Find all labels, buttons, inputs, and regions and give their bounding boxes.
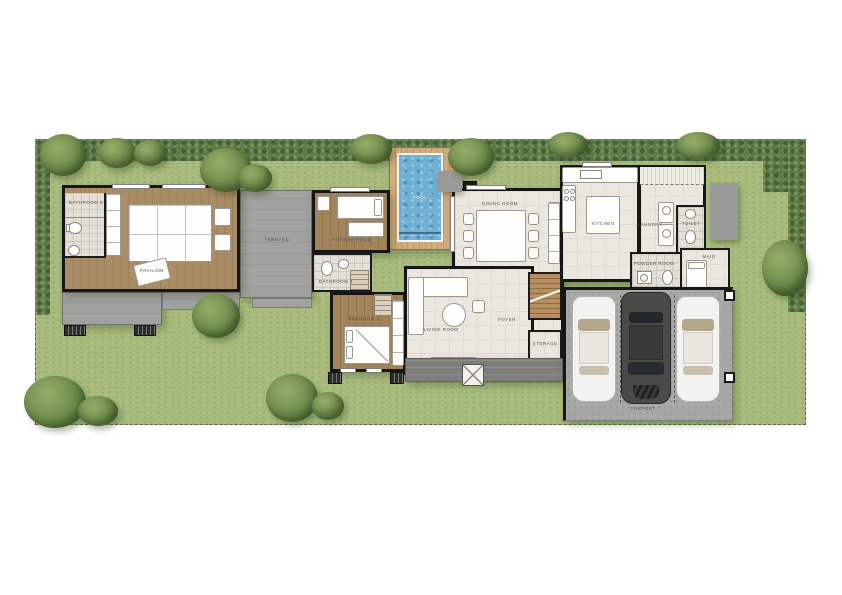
dining-window-west bbox=[450, 196, 455, 252]
car-white-left-rear-window bbox=[579, 366, 608, 375]
fitness-pillow bbox=[374, 199, 382, 216]
stove-burner-3 bbox=[564, 196, 569, 201]
fitness-side-table bbox=[317, 196, 330, 211]
bedroom4-window-2 bbox=[366, 368, 382, 373]
tree-bottom-left-2 bbox=[78, 396, 118, 426]
label-bathroom5: BATHROOM 5 bbox=[69, 200, 103, 205]
pavilion-wardrobe bbox=[106, 193, 121, 256]
label-bedroom4: BEDROOM 4 bbox=[348, 316, 379, 321]
dining-window-north bbox=[466, 185, 506, 190]
kitchen-sink bbox=[580, 170, 602, 179]
bedroom4-pillow-1 bbox=[346, 330, 353, 343]
tree-right-side bbox=[762, 240, 808, 296]
dining-chair-2 bbox=[463, 230, 474, 242]
tree-top-left-2 bbox=[98, 138, 136, 168]
pool-lane-line bbox=[399, 232, 441, 234]
tree-bottom-center-1 bbox=[266, 374, 318, 422]
sink-bathroom4 bbox=[338, 259, 349, 269]
powder-toilet bbox=[662, 270, 673, 285]
tree-bottom-center-2 bbox=[312, 392, 344, 420]
staircase-diagonal bbox=[530, 274, 560, 318]
dining-chair-6 bbox=[528, 247, 539, 259]
toilet-fixture-toilet-room bbox=[685, 230, 696, 244]
sink-bathroom5 bbox=[68, 245, 80, 256]
pavilion-porch bbox=[62, 292, 162, 325]
car-dark-grille bbox=[633, 385, 660, 398]
label-pool: POOL bbox=[413, 195, 427, 200]
car-white-left-roof bbox=[579, 332, 609, 363]
tree-bottom-left-1 bbox=[24, 376, 86, 428]
car-white-right-roof bbox=[683, 332, 713, 363]
ac-unit-bedroom-2 bbox=[390, 372, 404, 384]
dining-chair-1 bbox=[463, 213, 474, 225]
car-white-left-windshield bbox=[578, 319, 610, 331]
pavilion-side-table-1 bbox=[214, 208, 231, 226]
canopy-dining bbox=[438, 171, 462, 192]
label-foyer: FOYER bbox=[498, 317, 516, 322]
living-sofa-left bbox=[408, 277, 424, 335]
toilet-fixture-bathroom4 bbox=[321, 261, 333, 276]
label-storage: STORAGE bbox=[532, 341, 557, 346]
label-pavilion: PAVILION bbox=[140, 268, 164, 273]
pavilion-window-2 bbox=[162, 184, 206, 189]
tree-top-center-3 bbox=[548, 132, 588, 158]
tree-top-left-3 bbox=[134, 140, 166, 166]
sink-toilet-room bbox=[685, 209, 696, 219]
bedroom4-closet bbox=[374, 294, 392, 316]
label-powder: POWDER ROOM bbox=[634, 261, 674, 266]
terrace-step bbox=[252, 298, 312, 308]
bedroom4-pillow-2 bbox=[346, 346, 353, 359]
kitchen-window bbox=[582, 162, 612, 167]
carport-stall-divider-2 bbox=[674, 295, 675, 403]
label-terrace: TERRACE bbox=[265, 237, 290, 242]
dining-chair-5 bbox=[528, 230, 539, 242]
canopy-side bbox=[710, 183, 738, 240]
fitness-bench bbox=[348, 222, 384, 237]
pavilion-ac-unit-1 bbox=[64, 325, 86, 336]
fitness-window bbox=[330, 187, 370, 192]
bedroom4-wardrobe bbox=[392, 300, 404, 366]
terrace-deck bbox=[240, 190, 312, 298]
dining-chair-3 bbox=[463, 247, 474, 259]
kitchen-island bbox=[586, 196, 620, 234]
dining-table bbox=[476, 210, 526, 262]
utility-box-right-2 bbox=[724, 372, 735, 383]
tree-top-right bbox=[676, 132, 720, 160]
entry-walkway bbox=[405, 358, 563, 382]
stove-burner-1 bbox=[564, 189, 569, 194]
powder-sink bbox=[640, 274, 648, 282]
car-dark-rear-window bbox=[629, 312, 663, 323]
ac-unit-bedroom-1 bbox=[328, 372, 342, 384]
dryer-door bbox=[662, 229, 671, 238]
tree-top-center-2 bbox=[448, 138, 494, 176]
car-white-right-rear-window bbox=[683, 366, 712, 375]
label-dining: DINING ROOM bbox=[482, 201, 518, 206]
toilet-fixture-bathroom5 bbox=[68, 222, 82, 234]
label-fitness: FITNESS ROOM bbox=[332, 237, 372, 242]
pavilion-sofa bbox=[128, 204, 212, 262]
living-armchair bbox=[472, 300, 485, 313]
bathroom5-partition bbox=[66, 217, 104, 218]
label-bathroom4: BATHROOM 4 bbox=[319, 279, 353, 284]
maid-pillow bbox=[688, 262, 705, 269]
stove-burner-2 bbox=[570, 189, 575, 194]
car-white-right-windshield bbox=[682, 319, 714, 331]
tree-top-center-1 bbox=[350, 134, 392, 164]
car-white-right bbox=[676, 296, 720, 402]
label-carport: CARPORT bbox=[630, 406, 655, 411]
label-maid: MAID bbox=[702, 254, 715, 259]
floor-plan-canvas: BATHROOM 5 PAVILION TERRACE POOL FITNESS… bbox=[0, 0, 842, 595]
car-dark-roof bbox=[629, 325, 664, 360]
tree-terrace bbox=[192, 294, 240, 338]
living-coffee-table bbox=[442, 303, 466, 327]
stove-burner-4 bbox=[570, 196, 575, 201]
pavilion-ac-unit-2 bbox=[134, 325, 156, 336]
dining-chair-4 bbox=[528, 213, 539, 225]
bedroom4-window-1 bbox=[340, 368, 356, 373]
washer-door bbox=[662, 206, 671, 215]
tree-top-left-1 bbox=[40, 134, 86, 176]
dining-sideboard bbox=[548, 202, 560, 264]
pavilion-window-1 bbox=[112, 184, 150, 189]
car-white-left bbox=[572, 296, 616, 402]
pavilion-side-table-2 bbox=[214, 234, 231, 251]
car-dark-center bbox=[621, 292, 671, 404]
entry-planter bbox=[462, 364, 484, 386]
toilet-tank-bathroom5 bbox=[66, 224, 70, 232]
car-dark-windshield bbox=[628, 362, 664, 375]
label-laundry: LAUNDRY bbox=[638, 222, 663, 227]
bedroom4-bed-foldline bbox=[356, 328, 388, 362]
label-kitchen: KITCHEN bbox=[592, 221, 615, 226]
utility-box-right-1 bbox=[724, 290, 735, 301]
tree-palm-2 bbox=[238, 164, 272, 192]
label-living: LIVING ROOM bbox=[424, 327, 459, 332]
laundry-drying-rack bbox=[640, 167, 704, 185]
label-toilet: TOILET bbox=[682, 221, 700, 226]
